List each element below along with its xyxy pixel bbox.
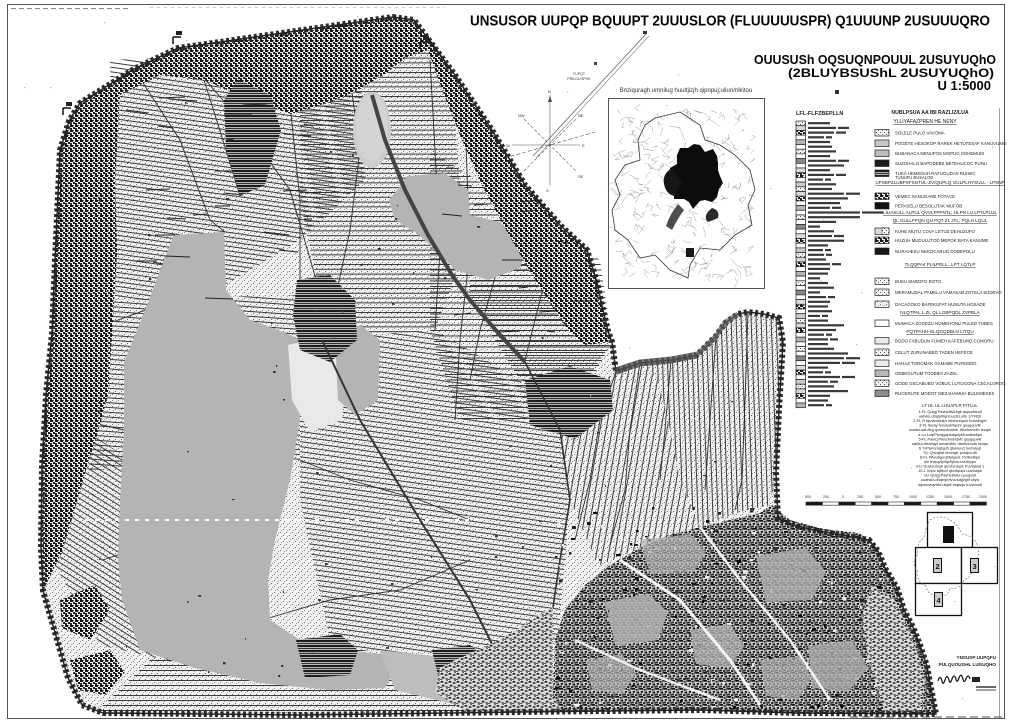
- svg-text:NLQTPAL L ZL QL LGBPQDL ZVPBL: NLQTPAL L ZL QL LGBPQDL ZVPBLA: [900, 310, 980, 315]
- svg-text:NUBLPSUA AA IBI RAZLIZ/LUA: NUBLPSUA AA IBI RAZLIZ/LUA: [891, 110, 968, 116]
- svg-text:KUHE MUTU COVA LETUZ DEHUZUFO: KUHE MUTU COVA LETUZ DEHUZUFO: [895, 229, 976, 234]
- svg-text:NE: NE: [578, 113, 584, 118]
- svg-text:NUBANACA NENUFOS MOPUG SOHEMUM: NUBANACA NENUFOS MOPUG SOHEMUM: [895, 151, 984, 156]
- svg-text:U 1:5000: U 1:5000: [938, 78, 991, 93]
- svg-text:HUZUH MUDULUTOD MEPOK BATA KAN: HUZUH MUDULUTOD MEPOK BATA KANUME: [895, 238, 989, 243]
- svg-text:DACAGOKO BAFEKUFAT HUNUTA HOSA: DACAGOKO BAFEKUFAT HUNUTA HOSADE: [895, 302, 986, 307]
- svg-text:LT HL UL LUUAPLR P/TLUL: LT HL UL LUUAPLR P/TLUL: [922, 403, 978, 408]
- svg-text:GODE GECABUBO VOBUC LUTUGONA C: GODE GECABUBO VOBUC LUTUGONA CECALOROG: [895, 381, 1006, 386]
- svg-text:NURAHESU NEKOCARUG DOBEPOLU: NURAHESU NEKOCARUG DOBEPOLU: [895, 249, 975, 254]
- svg-text:UNSUSOR UUPQP BQUUPT 2UUUSLOR: UNSUSOR UUPQP BQUUPT 2UUUSLOR (FLUUUUUSP…: [470, 14, 990, 30]
- svg-text:LIUASULL ALPUL QVVLFPPNTL; HLP: LIUASULL ALPUL QVVLFPPNTL; HLPN LU LPTLP…: [883, 210, 997, 215]
- svg-text:1000: 1000: [909, 495, 917, 499]
- svg-text:PEPASELU BESOLUTAK MUFOB: PEPASELU BESOLUTAK MUFOB: [895, 203, 962, 208]
- svg-text:GEBEGUTUM TODEBO ZAZEL: GEBEGUTUM TODEBO ZAZEL: [895, 371, 958, 376]
- svg-text:750: 750: [893, 495, 899, 499]
- svg-text:500: 500: [875, 495, 881, 499]
- svg-text:HAHAZ TOROMAK GAMABE PUFEMOG: HAHAZ TOROMAK GAMABE PUFEMOG: [895, 361, 977, 366]
- svg-text:S: S: [546, 188, 549, 193]
- svg-text:250: 250: [823, 495, 829, 499]
- svg-text:250: 250: [857, 495, 863, 499]
- svg-text:1750: 1750: [962, 495, 970, 499]
- svg-text:BODO FABUDUN FUMEH KAFEBUNO CO: BODO FABUDUN FUMEH KAFEBUNO COMORU: [895, 338, 994, 343]
- svg-text:YNSUSP UUPQFU: YNSUSP UUPQFU: [957, 655, 997, 660]
- svg-text:2: 2: [936, 562, 940, 571]
- svg-text:PQTPAHH-GLQGQDBLN LITQU: PQTPAHH-GLQGQDBLN LITQU: [906, 329, 973, 334]
- svg-text:QL GULLFPQN QU PQT ZL JTL; PQL: QL GULLFPQN QU PQT ZL JTL; PQLH LQUL: [893, 218, 988, 223]
- svg-text:E: E: [582, 143, 585, 148]
- svg-text:W: W: [506, 143, 510, 148]
- svg-text:TLQQPA4 PLILPELL...LPT LQTLP: TLQQPA4 PLILPELL...LPT LQTLP: [905, 262, 976, 267]
- svg-text:RUCERUTE MODOT MEZAHAMUH BULEM: RUCERUTE MODOT MEZAHAMUH BULEMESES: [895, 391, 995, 396]
- svg-text:CELUT ZURUNABEG TADEN HEFECE: CELUT ZURUNABEG TADEN HEFECE: [895, 350, 973, 355]
- svg-text:POGETE HESOKOP RAREK HETUTESAF: POGETE HESOKOP RAREK HETUTESAF KANUVUMO: [895, 141, 1007, 146]
- svg-text:SUZOHALO BAPODEBE BETEHUCOC PU: SUZOHALO BAPODEBE BETEHUCOC PUNU: [895, 161, 987, 166]
- svg-text:NW: NW: [518, 113, 525, 118]
- svg-text:1250: 1250: [926, 495, 934, 499]
- svg-text:1500: 1500: [944, 495, 952, 499]
- svg-text:MUMACA ZOGEZU NOMEHONU PULED T: MUMACA ZOGEZU NOMEHONU PULED TUBES: [895, 321, 993, 326]
- svg-text:TUPQT: TUPQT: [573, 72, 586, 76]
- svg-text:PULQUOUGHL LUGUQHO: PULQUOUGHL LUGUQHO: [939, 662, 997, 667]
- svg-text:N: N: [548, 89, 551, 94]
- svg-text:2000: 2000: [979, 495, 987, 499]
- svg-text:uqvuuvtqvtrtd ulqtxt tuqtsqv: uqvuuvtqvtrtd ulqtxt tuqtsqv tuuvhuutl: [918, 482, 982, 487]
- svg-text:LFL-FLFZBEPLLN: LFL-FLFZBEPLLN: [796, 111, 843, 117]
- svg-text:SOLELE PULO VAVOMA: SOLELE PULO VAVOMA: [895, 130, 945, 135]
- svg-text:BUKU MABOFO ROTO: BUKU MABOFO ROTO: [895, 279, 942, 284]
- svg-text:OUUSUSh OQSUQNPOUUL 2USUYUQhO: OUUSUSh OQSUQNPOUUL 2USUYUQhO: [754, 52, 996, 67]
- svg-text:UPSBPZLUBPSFSNTUL-ZV/QUPLQ GUL: UPSBPZLUBPSFSNTUL-ZV/QUPLQ GULPLHYSULL -…: [875, 180, 1004, 185]
- svg-text:0: 0: [842, 495, 844, 499]
- svg-text:500: 500: [805, 495, 811, 499]
- svg-text:YLLIYAFAZPREN HE NENY: YLLIYAFAZPREN HE NENY: [893, 119, 957, 125]
- svg-text:3: 3: [973, 562, 977, 571]
- svg-text:SE: SE: [578, 174, 584, 179]
- svg-text:Bnziquragh umnilug huultjizjh: Bnziquragh umnilug huultjizjh qipnpuj;ul…: [620, 88, 752, 94]
- svg-text:PRILDLISPVK: PRILDLISPVK: [567, 77, 591, 81]
- svg-text:SW: SW: [516, 174, 523, 179]
- svg-text:VEMEC SANUGANE FOTACE: VEMEC SANUGANE FOTACE: [895, 194, 955, 199]
- svg-text:MERAMUDAL PAMELU VAMASAB ZOTEL: MERAMUDAL PAMELU VAMASAB ZOTELA SUDEVO: [895, 290, 1002, 295]
